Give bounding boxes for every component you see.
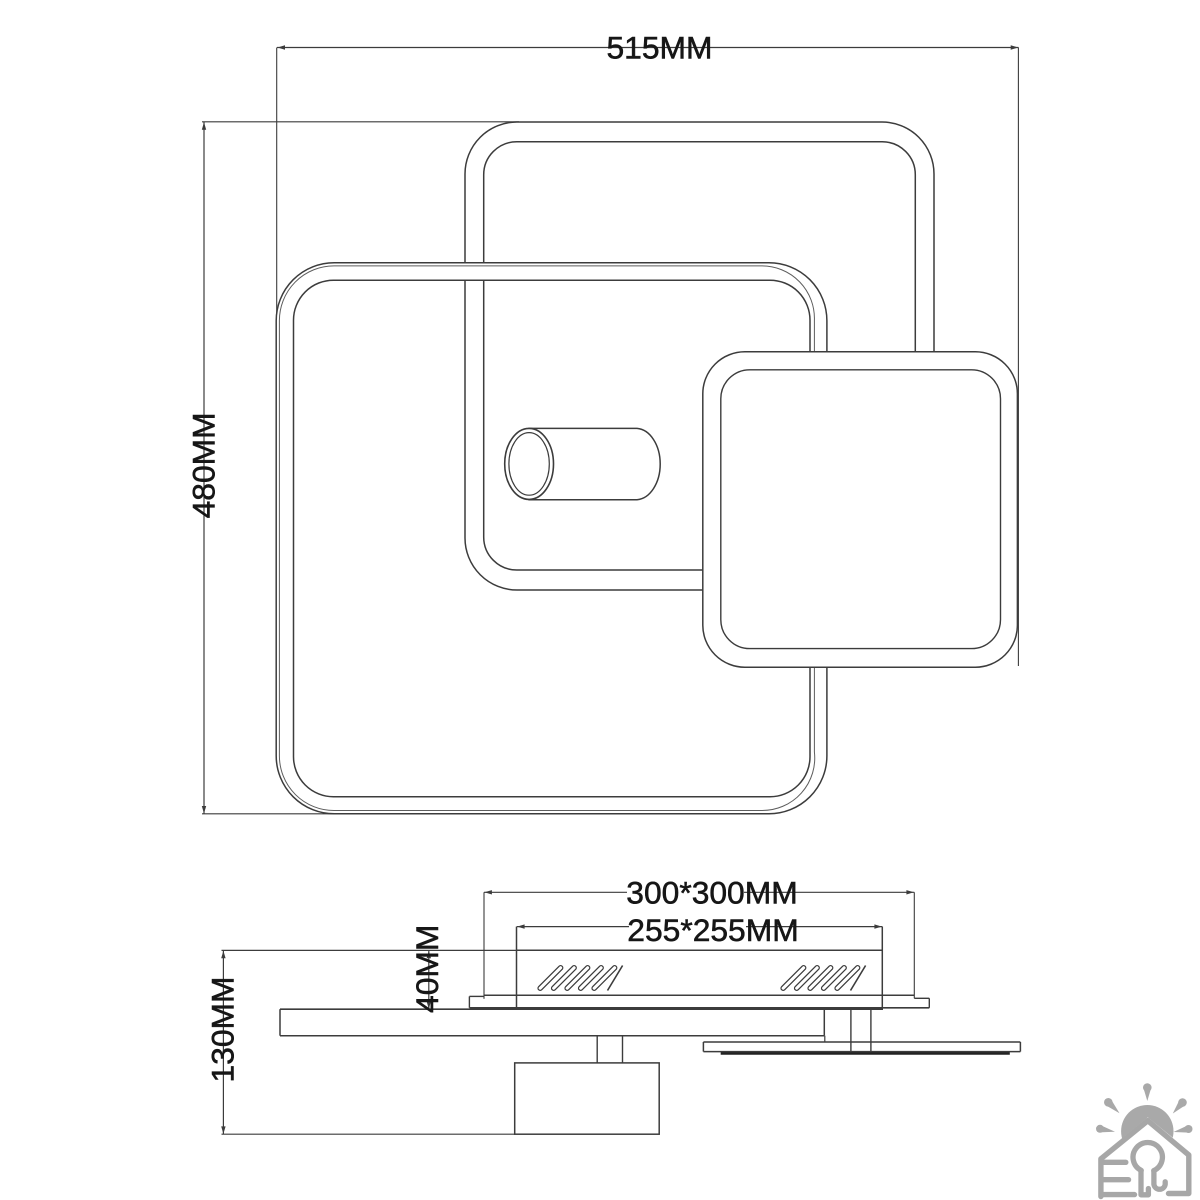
svg-text:130MM: 130MM — [204, 976, 240, 1082]
svg-text:255*255MM: 255*255MM — [627, 912, 798, 948]
svg-text:40MM: 40MM — [409, 925, 445, 1013]
svg-text:515MM: 515MM — [606, 30, 712, 66]
svg-text:480MM: 480MM — [185, 412, 221, 518]
svg-text:300*300MM: 300*300MM — [626, 875, 797, 911]
